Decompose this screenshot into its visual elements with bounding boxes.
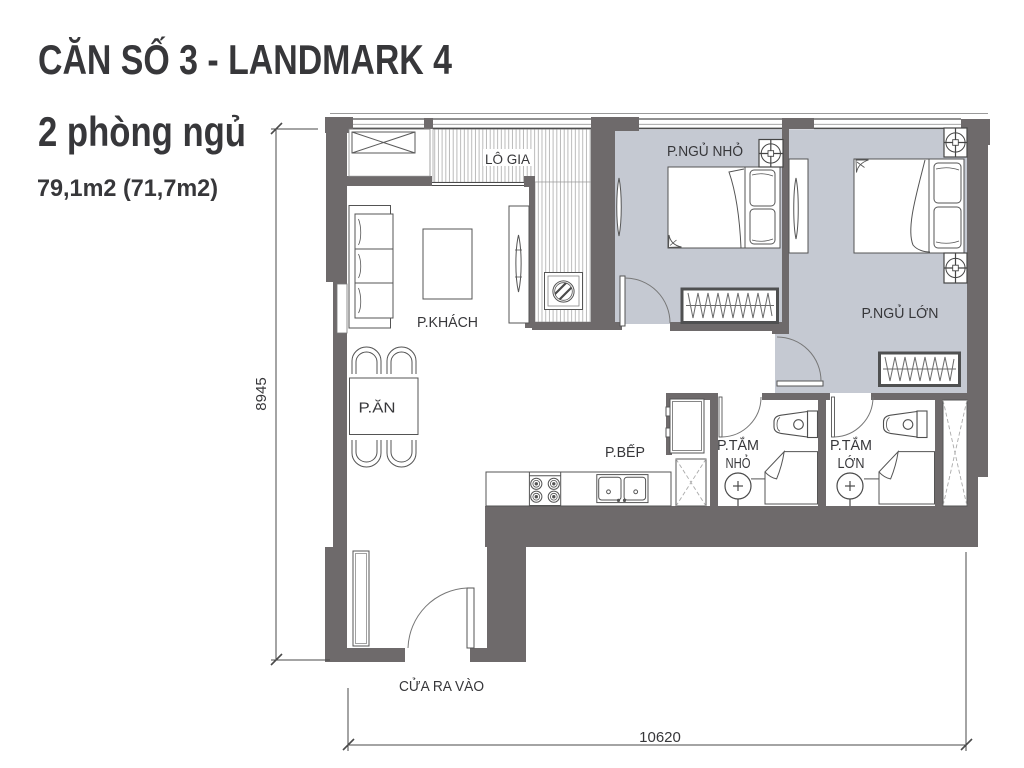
svg-text:8945: 8945 bbox=[253, 377, 270, 410]
svg-text:P.NGỦ LỚN: P.NGỦ LỚN bbox=[862, 304, 939, 322]
svg-text:P.TẮM: P.TẮM bbox=[830, 436, 872, 454]
svg-text:CỬA RA VÀO: CỬA RA VÀO bbox=[399, 677, 484, 695]
svg-text:P.TẮM: P.TẮM bbox=[717, 436, 759, 454]
svg-text:P.KHÁCH: P.KHÁCH bbox=[417, 314, 478, 331]
svg-text:79,1m2 (71,7m2): 79,1m2 (71,7m2) bbox=[37, 175, 218, 202]
svg-text:P.NGỦ NHỎ: P.NGỦ NHỎ bbox=[667, 142, 743, 160]
svg-text:2 phòng ngủ: 2 phòng ngủ bbox=[38, 108, 246, 155]
svg-text:CĂN SỐ 3 - LANDMARK 4: CĂN SỐ 3 - LANDMARK 4 bbox=[38, 35, 453, 83]
svg-text:LÔ GIA: LÔ GIA bbox=[485, 151, 531, 167]
svg-text:NHỎ: NHỎ bbox=[726, 454, 751, 472]
svg-text:10620: 10620 bbox=[639, 729, 681, 746]
svg-text:P.BẾP: P.BẾP bbox=[605, 444, 645, 461]
svg-text:P.ĂN: P.ĂN bbox=[359, 400, 396, 417]
svg-text:LỚN: LỚN bbox=[838, 455, 865, 472]
